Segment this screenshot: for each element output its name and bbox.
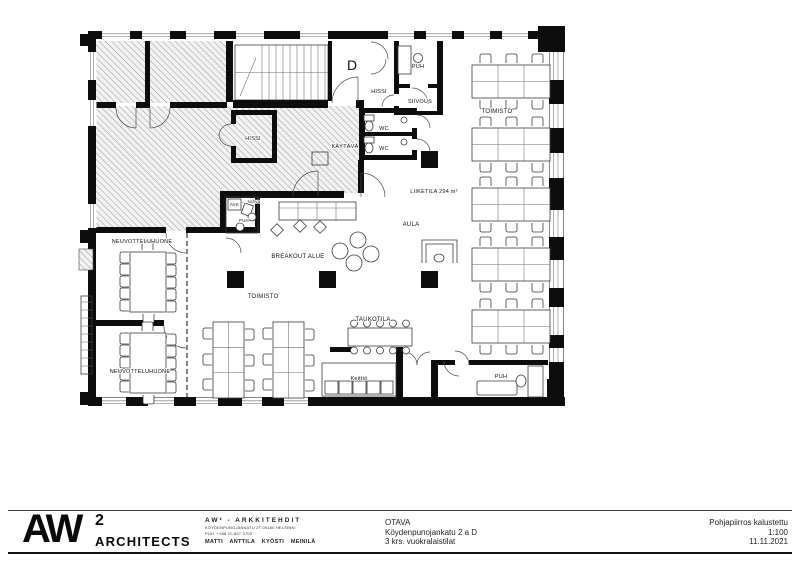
logo-architects: ARCHITECTS	[95, 534, 191, 549]
project-scope: 3 krs. vuokralaistilat	[385, 537, 477, 547]
project-info: OTAVA Köydenpunojankatu 2 a D 3 krs. vuo…	[385, 518, 477, 547]
label-liiketila: LIIKETILA 294 m²	[410, 189, 457, 195]
firm-phone: PUH. +358 10 837 3700	[205, 531, 365, 536]
furniture-office-center	[203, 322, 314, 398]
drawing-info: Pohjapiirros kalustettu 1:100 11.11.2021	[709, 518, 788, 547]
label-aula: AULA	[403, 222, 420, 228]
floor-plan: D PUH HISSI SIIVOUS WC WC KÄYTÄVÄ HISSI …	[0, 0, 800, 565]
label-sohva-note: ← sohva	[242, 199, 261, 204]
label-neuvottelu-1: NEUVOTTELUHUONE	[112, 239, 173, 245]
logo-aw: AW	[22, 509, 80, 549]
label-kaytava: KÄYTÄVÄ	[331, 143, 358, 150]
label-wc-2: WC	[379, 146, 389, 152]
drawing-title: Pohjapiirros kalustettu	[709, 518, 788, 528]
drawing-date: 11.11.2021	[709, 537, 788, 547]
drawing-scale: 1:100	[709, 528, 788, 538]
project-client: OTAVA	[385, 518, 477, 528]
label-hissi-main: HISSI	[245, 136, 261, 142]
furniture-puh-bottom	[477, 366, 543, 397]
title-block-bottom-rule	[8, 552, 792, 554]
furniture-office-right	[472, 54, 550, 354]
label-puh-small: PUH	[239, 218, 249, 223]
label-keittio: Keittiö	[350, 376, 367, 382]
label-neuvottelu-2: NEUVOTTELUHUONE	[110, 369, 171, 375]
label-toimisto-right: TOIMISTO	[482, 109, 513, 115]
label-breakout: BREAKOUT ALUE	[271, 254, 324, 260]
title-block-top-rule	[8, 510, 792, 511]
furniture-breakout	[271, 202, 379, 271]
firm-partners: MATTI ANTTILA KYÖSTI MEINILÄ	[205, 539, 365, 545]
furniture-reception	[422, 240, 457, 263]
drawing-sheet: D PUH HISSI SIIVOUS WC WC KÄYTÄVÄ HISSI …	[0, 0, 800, 565]
label-wc-1: WC	[379, 126, 389, 132]
label-taukotila: TAUKOTILA	[355, 317, 390, 323]
logo-superscript: 2	[95, 512, 104, 530]
label-siivous: SIIVOUS	[408, 99, 432, 105]
project-address: Köydenpunojankatu 2 a D	[385, 528, 477, 538]
label-puh-bottom: PUH	[495, 374, 507, 380]
firm-name: AW² - ARKKITEHDIT	[205, 517, 365, 524]
label-entrance-d: D	[347, 57, 357, 73]
label-hissi-top: HISSI	[371, 89, 387, 95]
label-toimisto-center: TOIMISTO	[248, 294, 279, 300]
stairwell	[233, 41, 328, 101]
label-avk: AVK	[230, 202, 239, 207]
firm-info: AW² - ARKKITEHDIT KÖYDENPUNOJANKATU 2T 0…	[205, 517, 365, 545]
firm-address: KÖYDENPUNOJANKATU 2T 00180 HELSINKI	[205, 525, 365, 530]
label-puh-top: PUH	[412, 64, 424, 70]
